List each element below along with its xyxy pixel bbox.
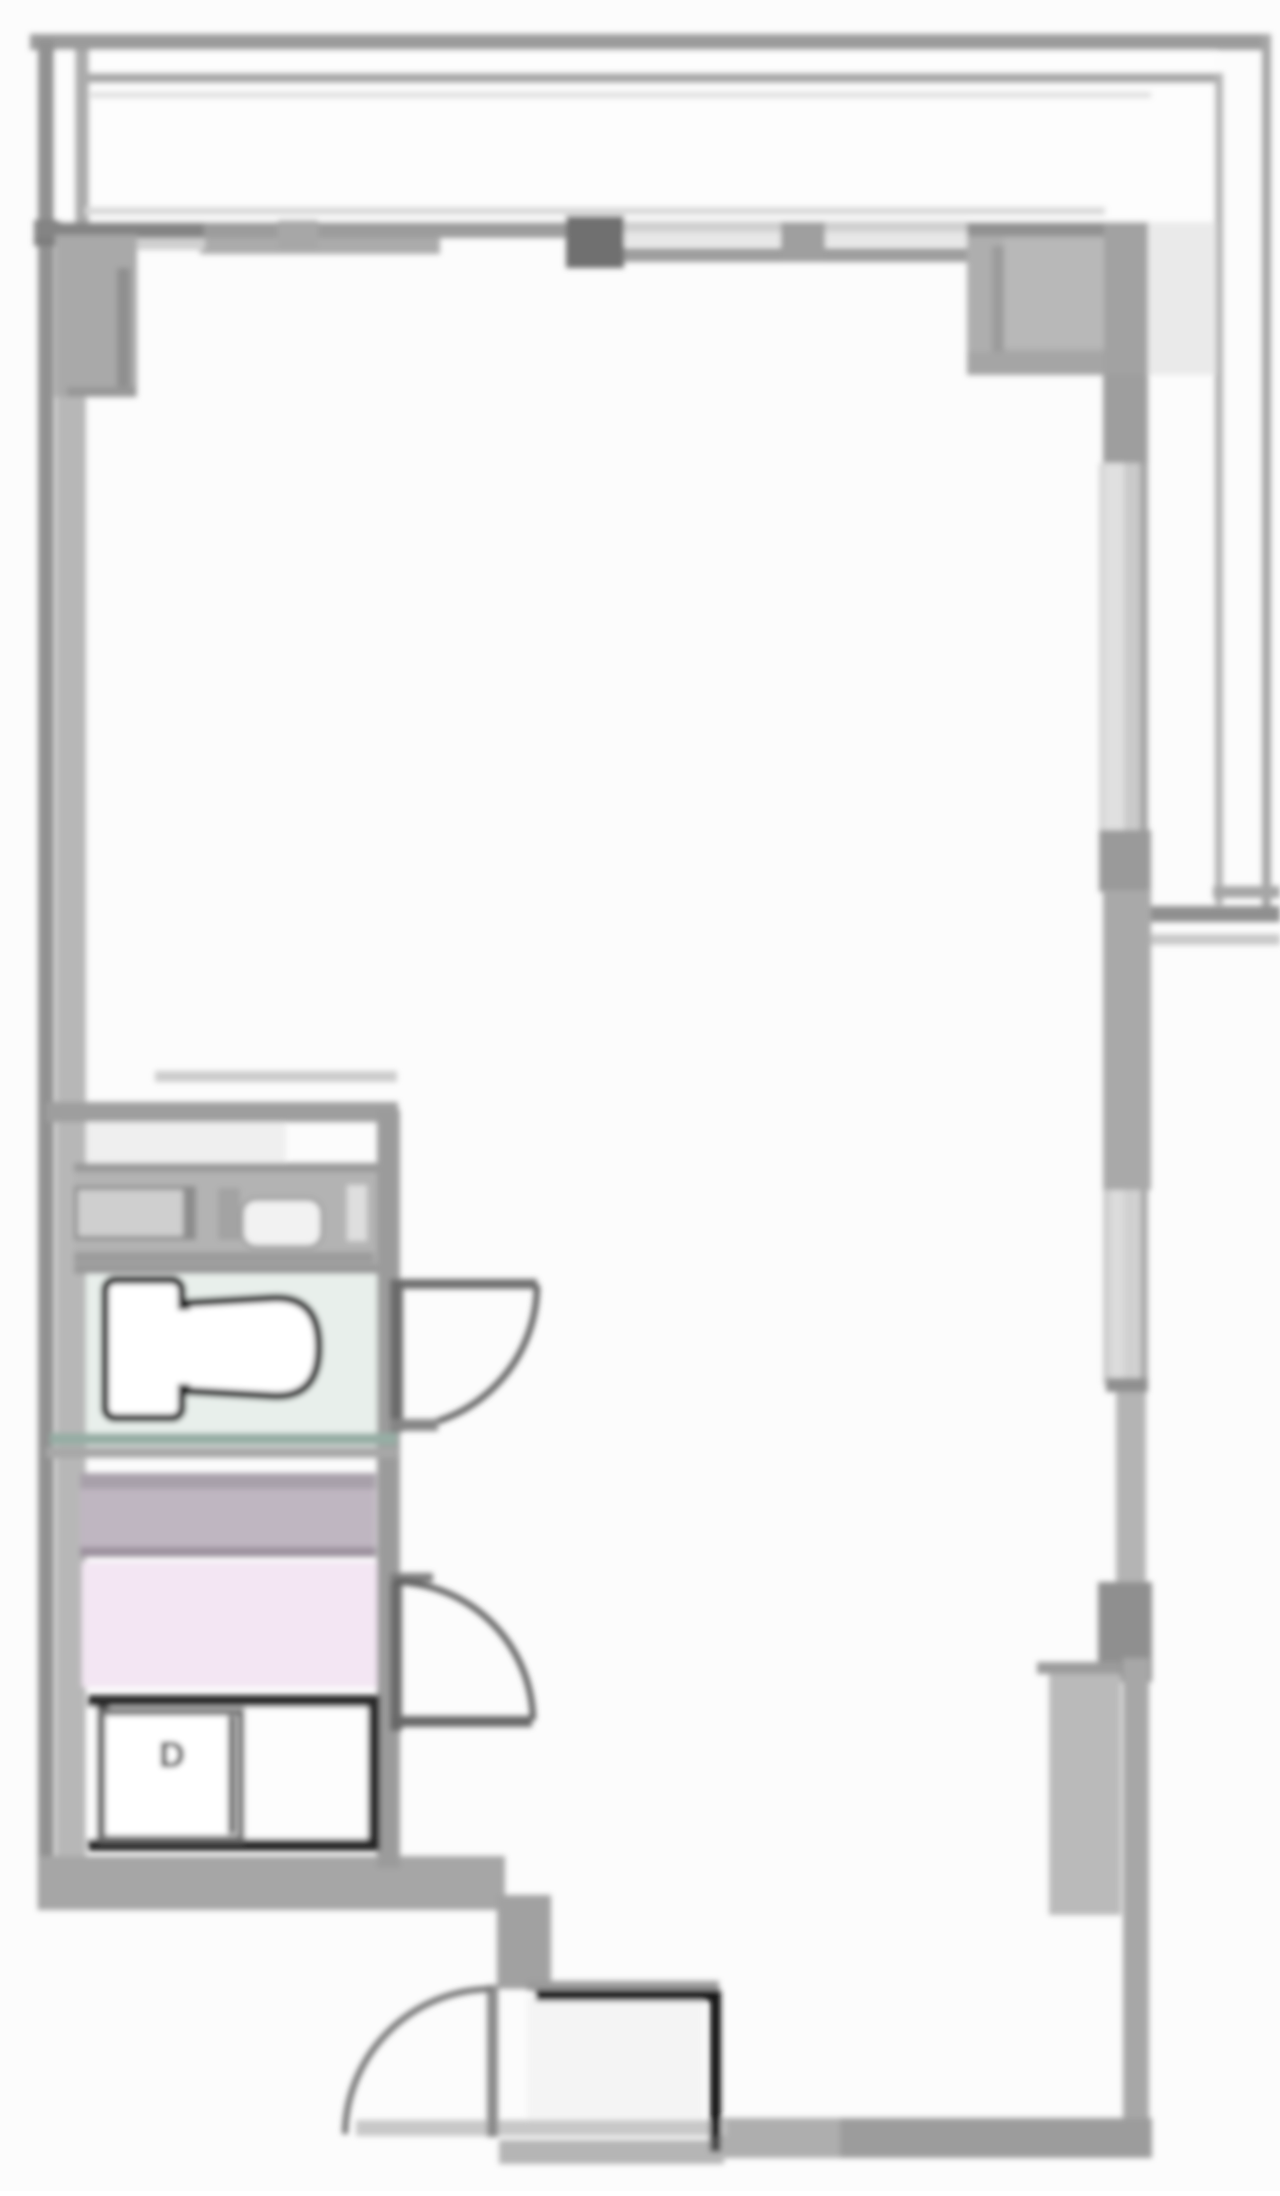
svg-text:D: D bbox=[159, 1734, 185, 1775]
